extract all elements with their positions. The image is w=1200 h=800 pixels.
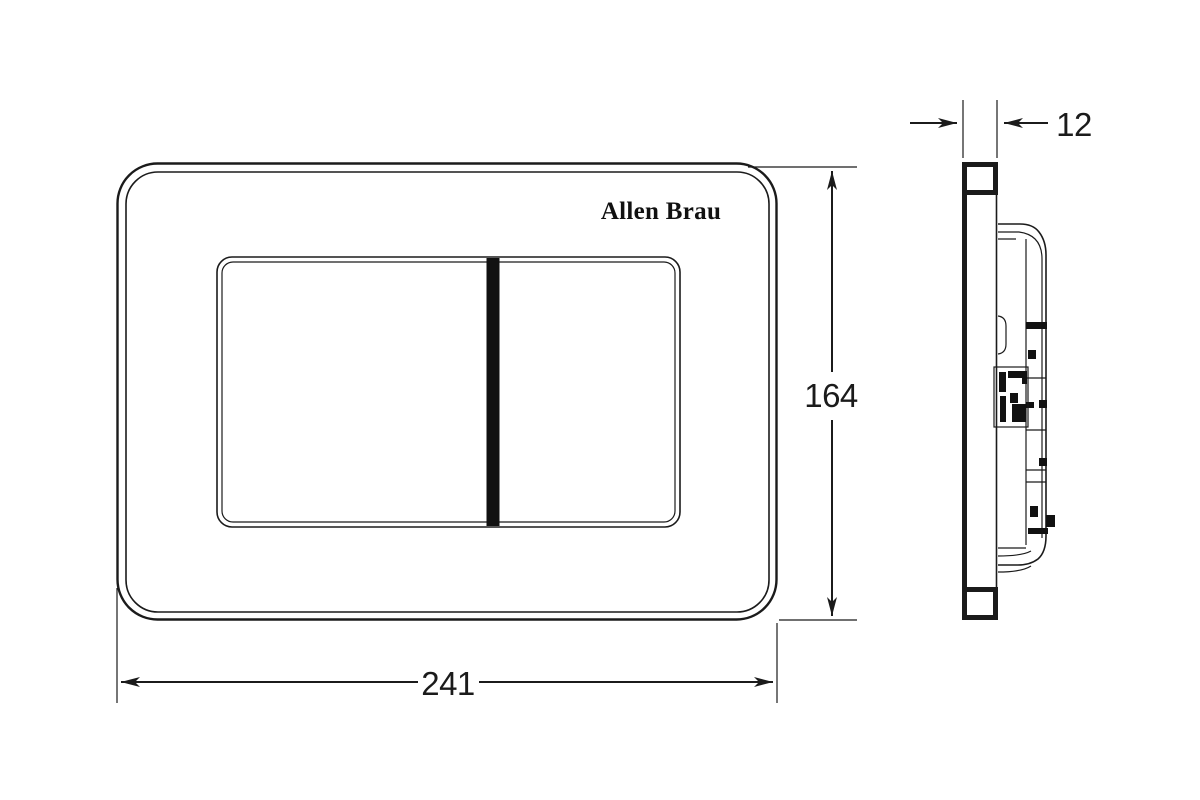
side-plate-top-box [965,165,996,193]
dimension-height: 164 [748,167,858,620]
dimension-height-value: 164 [804,377,858,414]
technical-drawing: Allen Brau 241 164 [0,0,1200,800]
logo-text: Allen Brau [601,198,721,225]
button-panel-border [217,257,680,527]
side-plate-bottom-box [965,590,996,618]
dimension-thickness: 12 [910,100,1092,158]
side-latch-detail [994,367,1028,427]
drawing-canvas: Allen Brau 241 164 [0,0,1200,800]
front-view: Allen Brau [118,164,777,620]
button-panel-border-inner-line [222,262,675,522]
dimension-width: 241 [117,588,777,703]
side-mechanism-housing [994,224,1055,572]
side-view [965,162,1056,620]
dimension-thickness-value: 12 [1056,106,1092,143]
button-divider-bar [487,258,500,526]
dimension-width-value: 241 [421,665,475,702]
